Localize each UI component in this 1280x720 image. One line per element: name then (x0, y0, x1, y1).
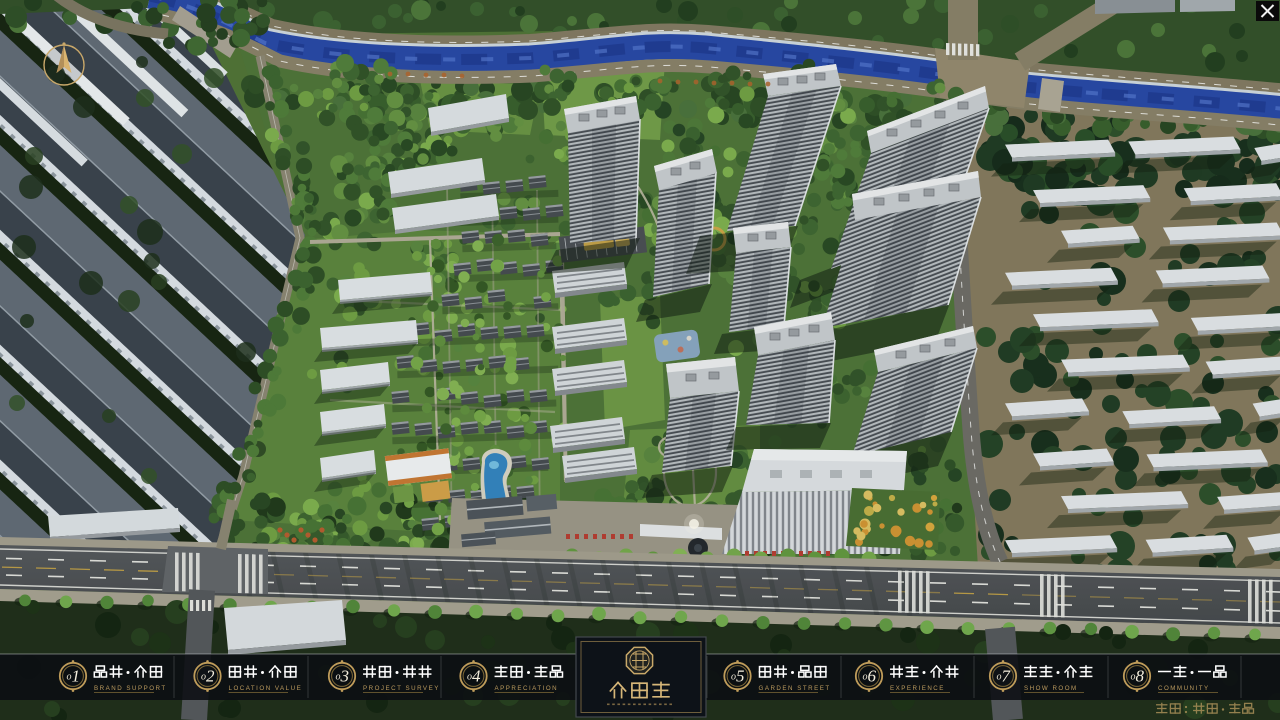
svg-text:6: 6 (868, 667, 877, 686)
svg-text:BRAND SUPPORT: BRAND SUPPORT (94, 685, 167, 692)
svg-text:LOCATION VALUE: LOCATION VALUE (229, 685, 303, 692)
svg-text:GARDEN STREET: GARDEN STREET (759, 685, 831, 692)
svg-text:EXPERIENCE: EXPERIENCE (890, 685, 945, 692)
svg-text:SHOW ROOM: SHOW ROOM (1024, 685, 1078, 692)
svg-text:8: 8 (1136, 667, 1145, 686)
svg-text:3: 3 (340, 667, 350, 686)
svg-text:APPRECIATION: APPRECIATION (495, 685, 559, 692)
svg-text:1: 1 (72, 667, 81, 686)
svg-text:COMMUNITY: COMMUNITY (1158, 685, 1210, 692)
svg-text:4: 4 (472, 667, 481, 686)
svg-text:2: 2 (206, 667, 215, 686)
svg-text:5: 5 (736, 667, 745, 686)
svg-text:PROJECT SURVEY: PROJECT SURVEY (363, 685, 440, 692)
